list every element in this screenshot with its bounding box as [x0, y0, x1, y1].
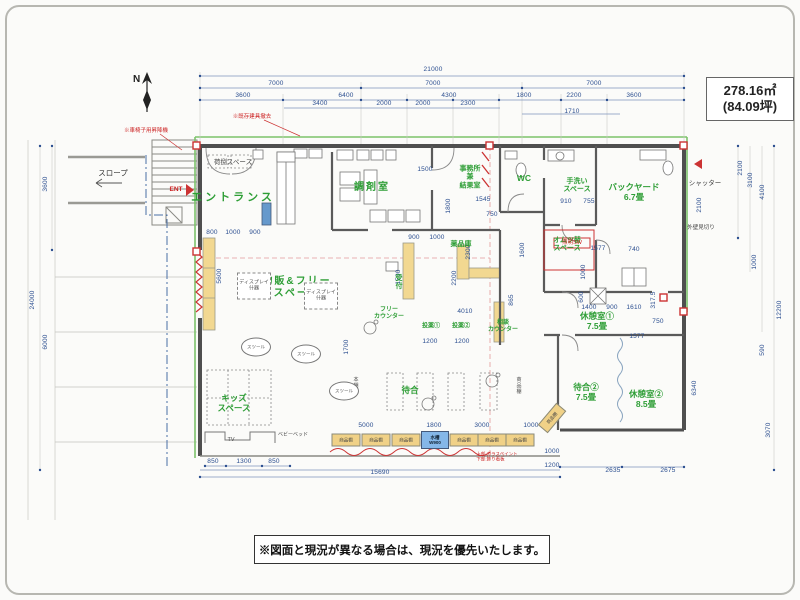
- shelf-box: 商品棚: [478, 434, 507, 447]
- room-label-handwash: 手洗い スペース: [563, 178, 590, 195]
- plan-dim: 910: [560, 198, 571, 206]
- plan-dim: 1200: [454, 338, 469, 346]
- plan-dim: 740: [628, 246, 639, 254]
- room-label-entrance: エントランス: [191, 192, 275, 205]
- plan-dim: 7000: [425, 80, 440, 88]
- label-aquarium: 水槽 W900: [421, 431, 449, 449]
- shelf-box: 商品棚: [450, 434, 479, 447]
- plan-dim: 4300: [441, 92, 456, 100]
- room-label-medicine-storage: 薬品庫: [451, 241, 472, 249]
- floorplan-page: N 278.16㎡ (84.09坪) 210007000700070003600…: [0, 0, 800, 600]
- plan-dim: 750: [652, 318, 663, 326]
- plan-dim: 3100: [747, 172, 755, 187]
- plan-dim: 600: [578, 291, 586, 302]
- plan-dim: 2200: [451, 270, 459, 285]
- plan-dim: 1000: [751, 254, 759, 269]
- room-label-free-counter: フリー カウンター: [374, 307, 404, 321]
- plan-dim: 6000: [42, 334, 50, 349]
- room-label-waiting2: 待合② 7.5畳: [573, 382, 599, 402]
- shelf-box: 商品棚: [506, 434, 535, 447]
- room-label-waiting: 待合: [401, 385, 418, 395]
- plan-dim: 755: [583, 198, 594, 206]
- plan-dim: 1000: [544, 448, 559, 456]
- plan-dim: 1500: [417, 166, 432, 174]
- stool: スツール: [241, 338, 271, 357]
- plan-dim: 7000: [268, 80, 283, 88]
- display-fixture: ディスプレイ 什器: [237, 273, 271, 300]
- plan-dim: 3600: [235, 92, 250, 100]
- plan-dim: 1000: [225, 229, 240, 237]
- plan-dim: 1710: [564, 108, 579, 116]
- room-label-nisabaki-space: 荷捌スペース: [214, 159, 252, 167]
- plan-dim: 1200: [422, 338, 437, 346]
- plan-dim: 3070: [765, 422, 773, 437]
- display-fixture: ディスプレイ 什器: [304, 283, 338, 310]
- label-goods-shelf: 商 品 棚: [516, 378, 521, 396]
- room-label-office: 事務所 兼 結果室: [460, 166, 481, 191]
- note-text: ※図面と現況が異なる場合は、現況を優先いたします。: [259, 542, 545, 558]
- room-label-rest2: 休憩室② 8.5畳: [629, 389, 663, 409]
- label-shutter: シャッター: [689, 180, 722, 188]
- plan-dim: 15690: [370, 469, 389, 477]
- plan-dim: 24000: [29, 290, 37, 309]
- plan-dim: 1000: [580, 264, 588, 279]
- shelf-box: 商品棚: [332, 434, 361, 447]
- plan-dim: 5000: [358, 422, 373, 430]
- plan-dim: 3600: [42, 176, 50, 191]
- plan-dim: 1700: [343, 339, 351, 354]
- plan-dim: 3000: [474, 422, 489, 430]
- note-existing-fittings: ※既存建具撤去: [233, 114, 272, 120]
- plan-dim: 7000: [586, 80, 601, 88]
- room-label-dispensary: 調剤室: [354, 182, 390, 194]
- plan-dim: 1300: [236, 458, 251, 466]
- plan-dim: 850: [207, 458, 218, 466]
- plan-dim: 590: [759, 344, 767, 355]
- plan-dim: 900: [408, 234, 419, 242]
- note-glass-paint: 上部:ガラスペイント 下部:飾り看板: [476, 452, 517, 463]
- label-slope: スロープ: [98, 170, 128, 179]
- plan-dim: 6400: [338, 92, 353, 100]
- room-label-soudan-counter: 相談 カウンター: [488, 320, 518, 334]
- plan-dim: 2000: [376, 100, 391, 108]
- plan-dim: 317.5: [650, 291, 658, 308]
- plan-dim: 2300: [460, 100, 475, 108]
- plan-dim: 865: [508, 294, 516, 305]
- label-babybed: ベビーベッド: [278, 433, 308, 439]
- plan-dim: 1610: [626, 304, 641, 312]
- plan-dim: 5600: [216, 268, 224, 283]
- shelf-box: 商品棚: [538, 403, 567, 434]
- stool: スツール: [329, 382, 359, 401]
- label-light-switch: 照明SW: [562, 240, 582, 246]
- stool: スツール: [291, 345, 321, 364]
- plan-dim: 750: [486, 211, 497, 219]
- plan-dim: 2635: [605, 467, 620, 475]
- plan-dim: 2200: [566, 92, 581, 100]
- plan-dim: 2000: [415, 100, 430, 108]
- room-label-reception: 受 付: [396, 275, 403, 292]
- room-label-kids-space: キッズ スペース: [218, 393, 251, 413]
- room-label-rest1: 休憩室① 7.5畳: [580, 311, 614, 331]
- room-label-toyaku1: 投薬①: [422, 323, 440, 330]
- plan-dim: 12200: [776, 300, 784, 319]
- shelf-box: 商品棚: [392, 434, 421, 447]
- plan-labels-layer: 2100070007000700036006400430018002200360…: [0, 0, 800, 600]
- plan-dim: 1600: [519, 242, 527, 257]
- plan-dim: 1577: [629, 333, 644, 341]
- plan-dim: 3600: [626, 92, 641, 100]
- plan-dim: 4100: [759, 184, 767, 199]
- plan-dim: 6340: [691, 380, 699, 395]
- plan-dim: 2100: [737, 160, 745, 175]
- label-wall-edge: 外壁見切り: [687, 225, 715, 231]
- room-label-toyaku2: 投薬②: [452, 323, 470, 330]
- plan-dim: 4010: [457, 308, 472, 316]
- plan-dim: 1800: [516, 92, 531, 100]
- plan-dim: 1000: [429, 234, 444, 242]
- plan-dim: 1800: [426, 422, 441, 430]
- plan-dim: 1000: [523, 422, 538, 430]
- label-ent: ENT: [170, 186, 183, 194]
- plan-dim: 2100: [696, 197, 704, 212]
- plan-dim: 1800: [445, 198, 453, 213]
- shelf-box: 商品棚: [362, 434, 391, 447]
- plan-dim: 1545: [475, 196, 490, 204]
- plan-dim: 900: [249, 229, 260, 237]
- room-label-wc: WC: [517, 173, 531, 183]
- plan-dim: 21000: [423, 66, 442, 74]
- plan-dim: 850: [268, 458, 279, 466]
- plan-dim: 800: [206, 229, 217, 237]
- note-wheelchair-lift: ※車椅子用昇降機: [124, 128, 168, 134]
- room-label-backyard: バックヤード 6.7畳: [608, 182, 659, 202]
- note-box: ※図面と現況が異なる場合は、現況を優先いたします。: [254, 535, 550, 564]
- plan-dim: 1577: [590, 245, 605, 253]
- label-tv: TV: [227, 437, 234, 443]
- plan-dim: 1200: [544, 462, 559, 470]
- plan-dim: 3400: [312, 100, 327, 108]
- plan-dim: 2675: [660, 467, 675, 475]
